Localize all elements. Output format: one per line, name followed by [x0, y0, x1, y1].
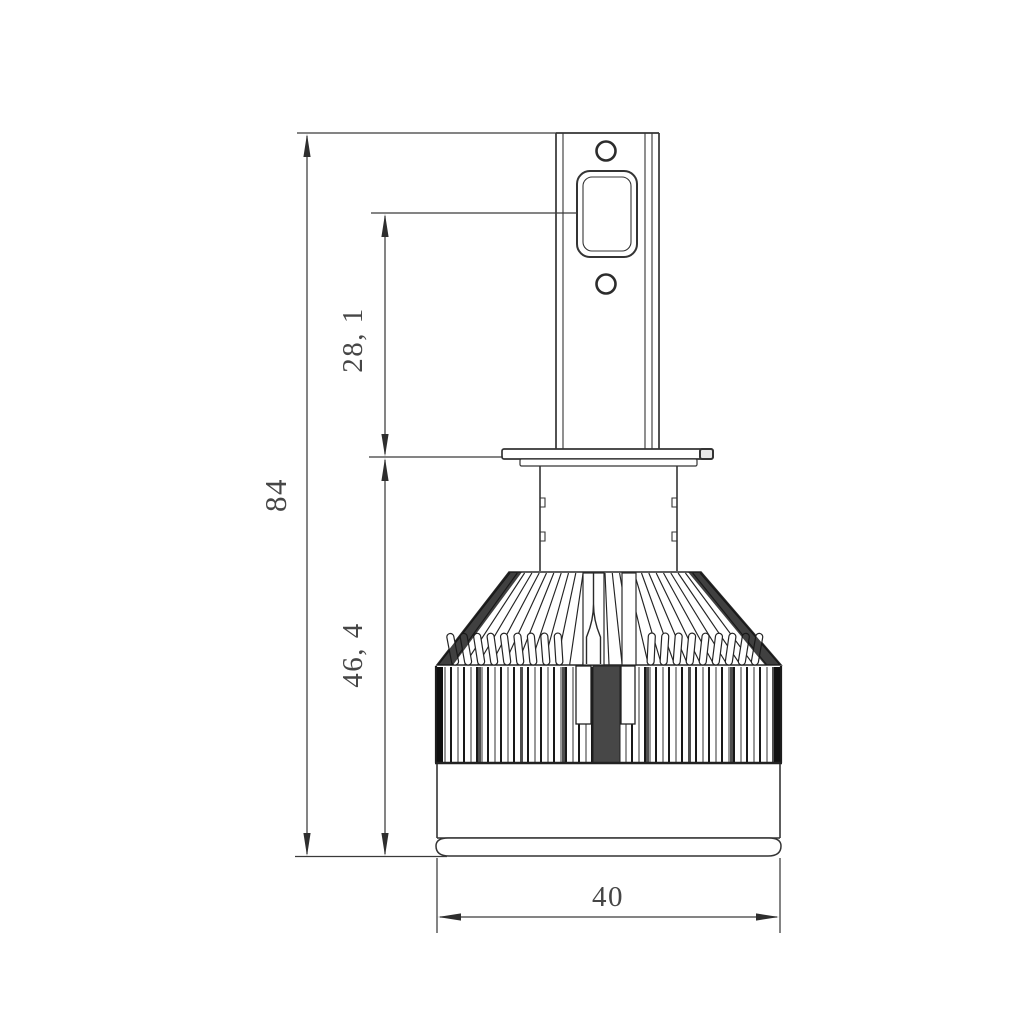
- drawing-canvas: 84 28, 1 46, 4 40: [0, 0, 1024, 1024]
- flange: [502, 449, 713, 466]
- bulb-stem: [556, 133, 659, 449]
- label-overall-height: 84: [258, 478, 293, 512]
- mounting-hole-bottom: [597, 275, 616, 294]
- fin-center-slot-left: [576, 666, 591, 724]
- collar-cylinder: [540, 466, 677, 571]
- connector-window: [577, 171, 637, 257]
- bulb-dimension-drawing: 84 28, 1 46, 4 40: [0, 0, 1024, 1024]
- fin-center-dark: [593, 666, 620, 763]
- fin-center-slot-right: [621, 666, 635, 724]
- dimension-system: [295, 133, 780, 933]
- label-upper-section: 28, 1: [337, 307, 369, 373]
- center-channel-2: [622, 573, 636, 665]
- mounting-hole-top: [597, 142, 616, 161]
- heatsink-shoulder: [437, 572, 781, 666]
- bulb-base: [436, 764, 781, 856]
- dimension-arrowheads: [303, 134, 779, 921]
- label-lower-section: 46, 4: [337, 622, 369, 688]
- label-base-width: 40: [592, 881, 624, 913]
- base-cap: [436, 838, 781, 856]
- heatsink-fins: [435, 666, 782, 763]
